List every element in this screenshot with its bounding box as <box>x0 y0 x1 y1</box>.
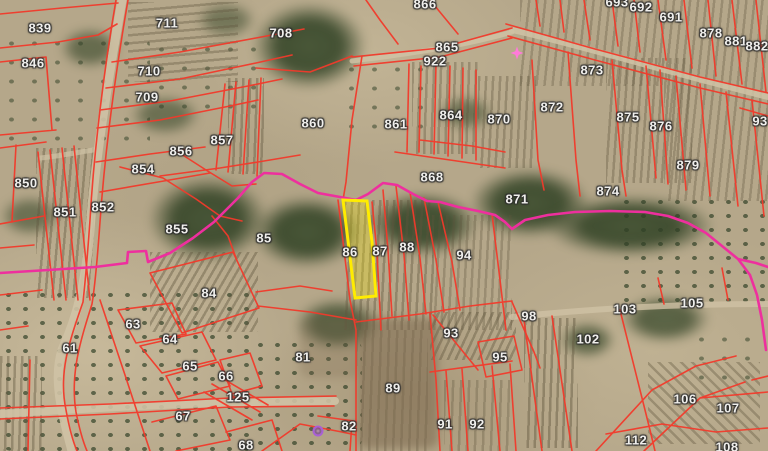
parcel-label-855: 855 <box>166 222 189 237</box>
parcel-label-105: 105 <box>681 296 704 311</box>
parcel-label-85: 85 <box>256 231 271 246</box>
parcel-label-857: 857 <box>211 133 234 148</box>
parcel-label-82: 82 <box>341 419 356 434</box>
parcel-label-693: 693 <box>606 0 629 10</box>
parcel-label-866: 866 <box>414 0 437 12</box>
parcel-label-108: 108 <box>716 440 739 451</box>
parcel-label-710: 710 <box>138 64 161 79</box>
parcel-label-856: 856 <box>170 144 193 159</box>
parcel-label-88: 88 <box>399 240 414 255</box>
parcel-label-94: 94 <box>456 248 471 263</box>
parcel-label-68: 68 <box>238 438 253 451</box>
parcel-label-125: 125 <box>227 390 250 405</box>
parcel-label-691: 691 <box>660 10 683 25</box>
parcel-label-879: 879 <box>677 158 700 173</box>
parcel-label-861: 861 <box>385 117 408 132</box>
parcel-label-873: 873 <box>581 63 604 78</box>
parcel-label-708: 708 <box>270 26 293 41</box>
parcel-label-64: 64 <box>162 332 177 347</box>
parcel-label-870: 870 <box>488 112 511 127</box>
cadastral-map-canvas[interactable]: 8398467117107097088668659226936926918788… <box>0 0 768 451</box>
parcel-label-67: 67 <box>175 409 190 424</box>
parcel-label-876: 876 <box>650 119 673 134</box>
parcel-label-871: 871 <box>506 192 529 207</box>
parcel-label-881: 881 <box>725 34 748 49</box>
parcel-label-875: 875 <box>617 110 640 125</box>
parcel-label-860: 860 <box>302 116 325 131</box>
parcel-label-93: 93 <box>752 114 767 129</box>
parcel-label-103: 103 <box>614 302 637 317</box>
parcel-label-92: 92 <box>469 417 484 432</box>
parcel-label-87: 87 <box>372 244 387 259</box>
parcel-label-91: 91 <box>437 417 452 432</box>
parcel-label-864: 864 <box>440 108 463 123</box>
parcel-label-692: 692 <box>630 0 653 15</box>
parcel-label-874: 874 <box>597 184 620 199</box>
parcel-label-112: 112 <box>625 433 647 448</box>
parcel-label-61: 61 <box>62 341 77 356</box>
parcel-label-95: 95 <box>492 350 507 365</box>
parcel-label-66: 66 <box>218 369 233 384</box>
parcel-label-846: 846 <box>22 56 45 71</box>
parcel-label-65: 65 <box>182 359 197 374</box>
parcel-label-878: 878 <box>700 26 723 41</box>
parcel-label-89: 89 <box>385 381 400 396</box>
parcel-label-81: 81 <box>295 350 310 365</box>
parcel-label-84: 84 <box>201 286 216 301</box>
parcel-label-93: 93 <box>443 326 458 341</box>
parcel-label-850: 850 <box>15 176 38 191</box>
parcel-label-63: 63 <box>125 317 140 332</box>
parcel-labels-layer: 8398467117107097088668659226936926918788… <box>0 0 768 451</box>
parcel-label-865: 865 <box>436 40 459 55</box>
parcel-label-839: 839 <box>29 21 52 36</box>
parcel-label-922: 922 <box>424 54 447 69</box>
parcel-label-872: 872 <box>541 100 564 115</box>
parcel-label-852: 852 <box>92 200 115 215</box>
parcel-label-98: 98 <box>521 309 536 324</box>
parcel-label-86: 86 <box>342 245 357 260</box>
parcel-label-107: 107 <box>717 401 740 416</box>
parcel-label-851: 851 <box>54 205 77 220</box>
parcel-label-868: 868 <box>421 170 444 185</box>
parcel-label-882: 882 <box>746 39 768 54</box>
parcel-label-854: 854 <box>132 162 155 177</box>
parcel-label-709: 709 <box>136 90 159 105</box>
parcel-label-102: 102 <box>577 332 600 347</box>
parcel-label-711: 711 <box>156 16 178 31</box>
parcel-label-106: 106 <box>674 392 697 407</box>
